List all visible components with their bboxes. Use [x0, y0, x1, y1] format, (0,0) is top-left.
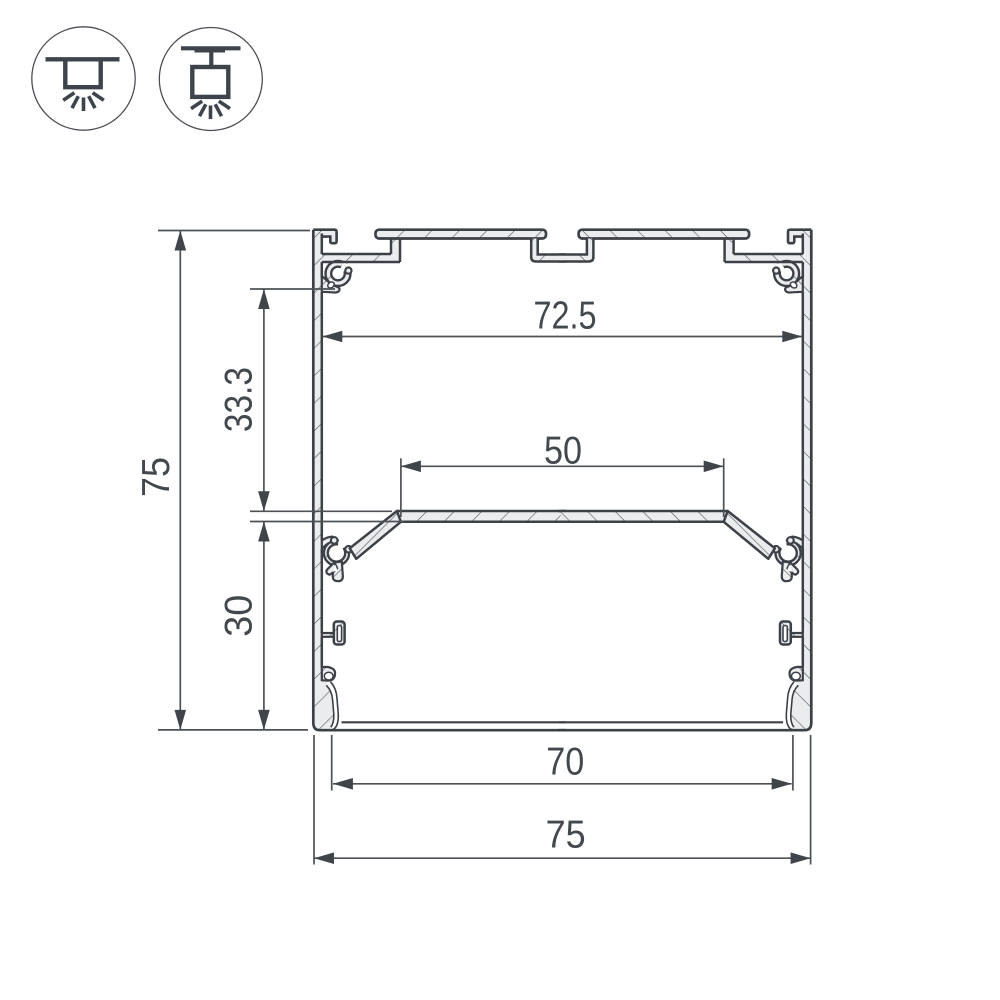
- svg-text:72.5: 72.5: [534, 295, 597, 338]
- svg-text:50: 50: [544, 430, 582, 473]
- svg-text:75: 75: [135, 457, 178, 497]
- svg-text:33.3: 33.3: [218, 367, 261, 432]
- svg-text:70: 70: [546, 740, 584, 783]
- svg-text:30: 30: [218, 595, 261, 637]
- svg-text:75: 75: [546, 814, 586, 857]
